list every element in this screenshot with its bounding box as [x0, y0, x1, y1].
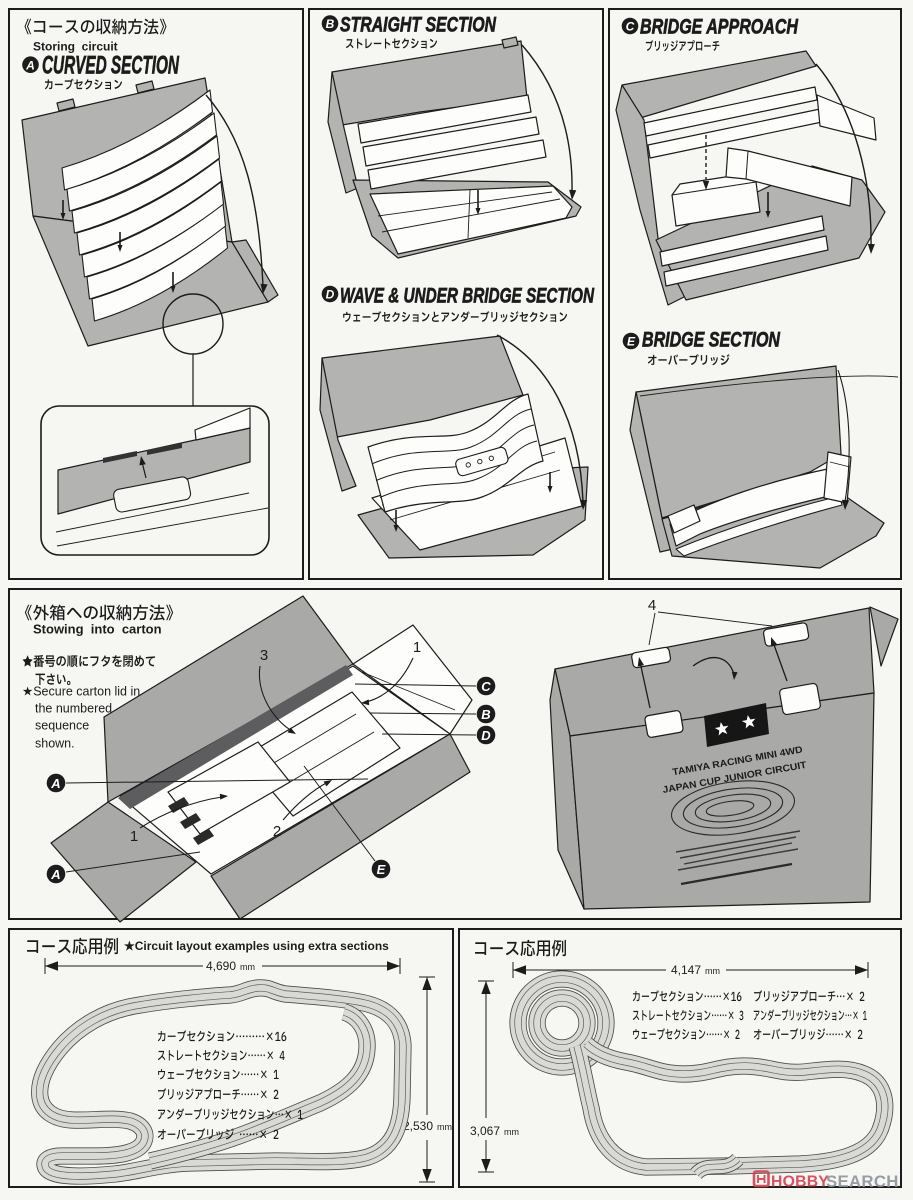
svg-text:shown.: shown. [35, 737, 75, 751]
svg-text:D: D [481, 728, 491, 743]
svg-text:CURVED SECTION: CURVED SECTION [42, 52, 180, 80]
svg-text:C: C [481, 679, 491, 694]
svg-text:★Circuit layout examples using: ★Circuit layout examples using extra sec… [124, 939, 389, 953]
svg-text:BRIDGE APPROACH: BRIDGE APPROACH [640, 16, 799, 39]
svg-text:C: C [626, 20, 635, 34]
svg-text:A: A [50, 867, 60, 882]
svg-text:★Secure carton lid in: ★Secure carton lid in [22, 685, 140, 699]
svg-text:A: A [50, 776, 60, 791]
svg-text:A: A [25, 58, 35, 72]
svg-text:Stowing into carton: Stowing into carton [33, 622, 162, 637]
svg-text:E: E [627, 335, 636, 349]
svg-text:E: E [377, 862, 386, 877]
svg-text:4,147: 4,147 [671, 963, 701, 977]
svg-text:3: 3 [260, 647, 268, 664]
svg-text:4,690: 4,690 [206, 959, 236, 973]
svg-text:STRAIGHT SECTION: STRAIGHT SECTION [340, 14, 497, 37]
svg-text:the numbered: the numbered [35, 702, 112, 716]
svg-text:mm: mm [240, 962, 255, 972]
svg-text:HOBBY: HOBBY [771, 1174, 829, 1191]
svg-text:B: B [326, 17, 335, 31]
svg-text:SEARCH: SEARCH [826, 1172, 899, 1191]
svg-text:4: 4 [648, 597, 656, 614]
svg-text:1: 1 [130, 828, 138, 845]
svg-text:WAVE & UNDER BRIDGE SECTION: WAVE & UNDER BRIDGE SECTION [340, 285, 595, 308]
svg-text:BRIDGE SECTION: BRIDGE SECTION [642, 329, 781, 352]
svg-text:B: B [481, 707, 490, 722]
svg-text:1: 1 [413, 639, 421, 656]
svg-text:D: D [326, 288, 335, 302]
svg-text:sequence: sequence [35, 719, 89, 733]
svg-text:mm: mm [705, 966, 720, 976]
svg-text:mm: mm [504, 1127, 519, 1137]
svg-text:2: 2 [273, 823, 281, 840]
svg-text:mm: mm [437, 1122, 452, 1132]
svg-text:3,067: 3,067 [470, 1124, 500, 1138]
